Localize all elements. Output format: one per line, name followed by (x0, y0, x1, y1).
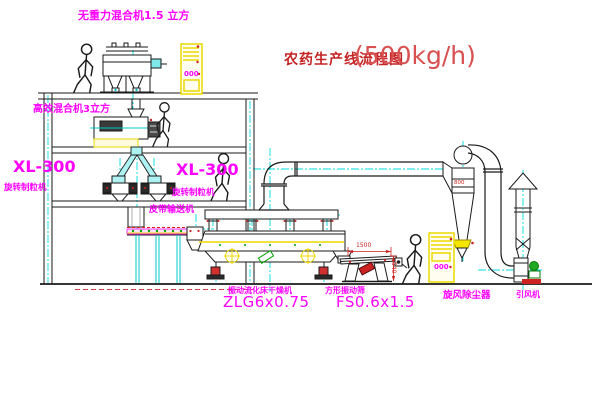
person-ground (403, 235, 422, 283)
cyclone-outlet-duct (468, 145, 517, 278)
dryer-model-label: ZLG6x0.75 (223, 295, 310, 310)
pesticide-line-flow-diagram: 农药生产线流程图 (500kg/h) 无重力混合机1.5 立方 高效混合机3立方… (0, 0, 600, 403)
granulator-right (141, 176, 175, 201)
belt-conveyor-label: 皮带输送机 (149, 206, 194, 215)
granulator-left-name-label: 旋转制粒机 (4, 184, 47, 193)
induced-draft-fan (514, 258, 541, 284)
fluid-bed-dryer (198, 210, 352, 279)
granulator-left-model-label: XL-300 (13, 159, 76, 175)
screen-model-label: FS0.6x1.5 (336, 295, 415, 310)
cyclone-label: 旋风除尘器 (443, 291, 491, 301)
granulator-right-name-label: 旋转制粒机 (172, 189, 215, 198)
screen-height-dim: 540 (390, 262, 396, 273)
person-roof (74, 44, 93, 92)
y-splitter-chute (117, 147, 157, 176)
fan-label: 引风机 (516, 291, 540, 299)
gravity-mixer-label: 无重力混合机1.5 立方 (78, 10, 189, 21)
screen-width-dim: 1500 (356, 243, 371, 249)
granulator-left (103, 176, 137, 201)
discharge-chute (128, 207, 144, 227)
control-cabinet-top (181, 44, 202, 94)
control-cabinet-bottom (429, 233, 454, 282)
horizontal-mixer-label: 高效混合机3立方 (33, 105, 110, 115)
gravity-free-mixer (100, 43, 167, 92)
cabinet-top-display: 000 (184, 71, 199, 78)
diagram-capacity: (500kg/h) (354, 43, 476, 68)
granulator-right-model-label: XL-300 (176, 162, 239, 178)
cabinet-bottom-display: 000 (434, 264, 449, 271)
cyclone-dia-dim: 800 (454, 181, 465, 187)
